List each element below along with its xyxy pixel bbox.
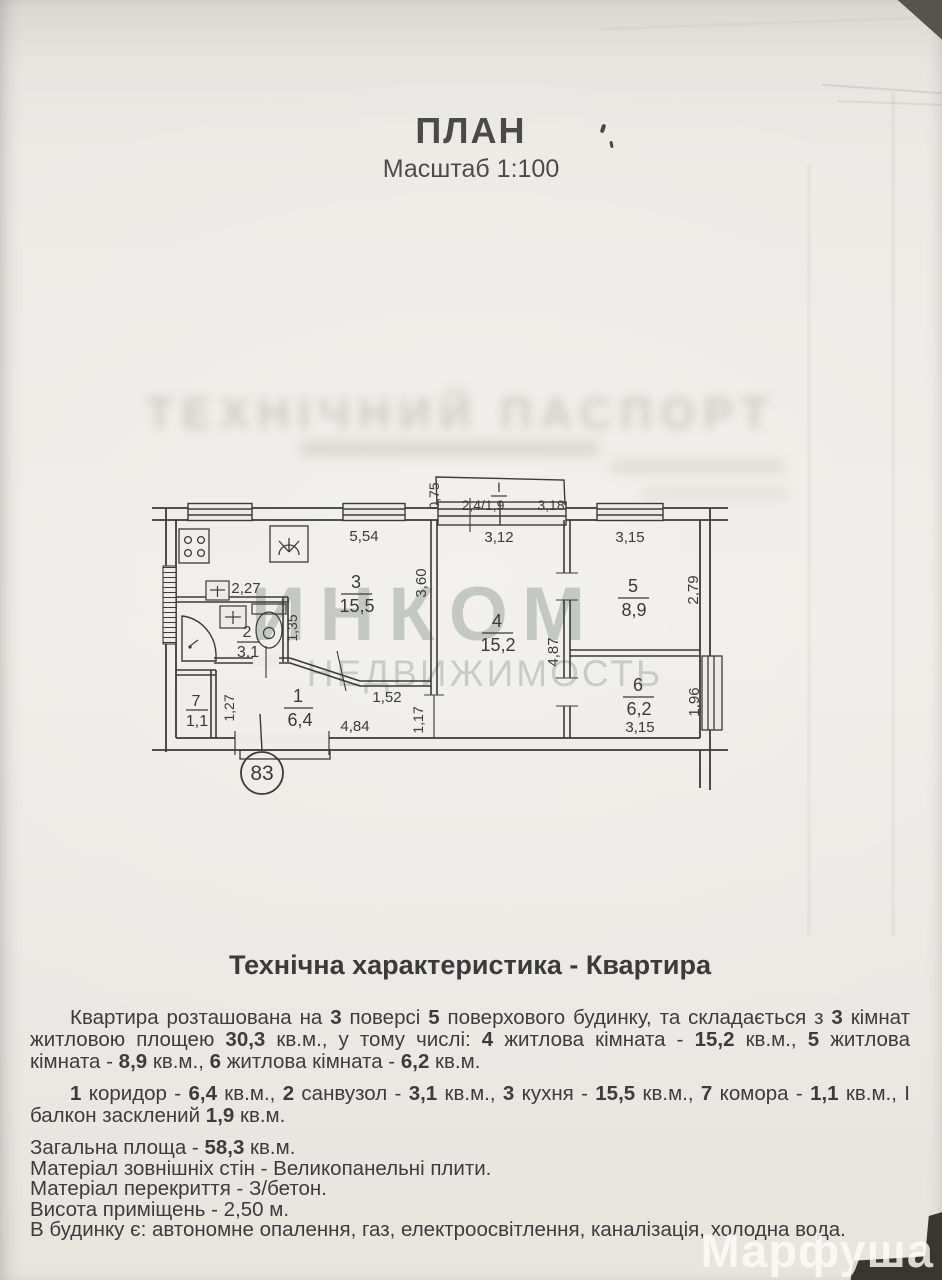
- svg-text:15,2: 15,2: [480, 635, 515, 655]
- dim-kitchen-top: 5,54: [349, 528, 378, 545]
- room-5-label: 5 8,9: [618, 576, 649, 620]
- description-paragraph-1: Квартира розташована на 3 поверсі 5 пове…: [30, 1007, 910, 1073]
- description-paragraph-2: 1 коридор - 6,4 кв.м., 2 санвузол - 3,1 …: [30, 1083, 910, 1127]
- walls-material-line: Матеріал зовнішніх стін - Великопанельні…: [30, 1159, 910, 1180]
- dim-room6-right: 1,96: [686, 687, 703, 716]
- svg-text:1,1: 1,1: [186, 713, 208, 730]
- radiator-icon: [163, 566, 176, 644]
- scanned-floor-plan-photo: { "header": { "title": "ПЛАН", "scale": …: [0, 0, 942, 1280]
- description-heading: Технічна характеристика - Квартира: [30, 950, 910, 981]
- room-4-label: 4 15,2: [480, 611, 515, 655]
- kitchen-stove-icon: [179, 529, 209, 563]
- dim-hall-diag: 1,52: [372, 689, 401, 706]
- room-1-label: 1 6,4: [284, 686, 313, 730]
- svg-text:8,9: 8,9: [621, 600, 646, 620]
- bathtub-icon: [182, 616, 216, 661]
- right-window-unit: [702, 656, 722, 730]
- dim-san-right: 1,35: [284, 614, 300, 641]
- svg-text:3,1: 3,1: [237, 644, 259, 661]
- dim-kitchen-right: 3,60: [413, 568, 430, 597]
- svg-text:4: 4: [492, 611, 502, 631]
- floors-material-line: Матеріал перекриття - З/бетон.: [30, 1179, 910, 1200]
- svg-text:6: 6: [633, 675, 643, 695]
- dim-room5-right: 2,79: [685, 575, 702, 604]
- dim-hall-right: 1,17: [410, 706, 426, 733]
- svg-text:7: 7: [192, 693, 201, 710]
- interior-walls: [176, 520, 700, 738]
- water-heater-icon: [270, 526, 308, 562]
- balcony-label: І: [497, 479, 501, 495]
- dim-room6-bottom: 3,15: [625, 719, 654, 736]
- photo-watermark: Марфуша: [700, 1223, 934, 1278]
- apartment-number-marker: 83: [241, 714, 283, 794]
- dim-pantry-right: 1,27: [221, 694, 237, 721]
- total-area-line: Загальна площа - 58,3 кв.м.: [30, 1138, 910, 1159]
- svg-text:5: 5: [628, 576, 638, 596]
- dim-room5-top: 3,15: [615, 529, 644, 546]
- svg-text:2: 2: [243, 624, 252, 641]
- room-3-label: 3 15,5: [339, 572, 374, 616]
- dim-balcony-window: 2,4/1,9: [462, 497, 505, 513]
- dim-balcony-right: 3,18: [537, 497, 564, 513]
- svg-text:3: 3: [351, 572, 361, 592]
- dim-room4-top: 3,12: [484, 529, 513, 546]
- room-6-label: 6 6,2: [623, 675, 654, 719]
- svg-text:6,4: 6,4: [287, 710, 312, 730]
- apartment-number: 83: [250, 762, 273, 785]
- dim-hall-bottom: 4,84: [340, 718, 369, 735]
- entrance-door: [235, 731, 330, 759]
- kitchen-sink-icon: [206, 581, 229, 600]
- svg-text:6,2: 6,2: [626, 699, 651, 719]
- svg-text:15,5: 15,5: [339, 596, 374, 616]
- dim-room4-right: 4,87: [545, 637, 562, 666]
- svg-text:1: 1: [293, 686, 303, 706]
- technical-description: Технічна характеристика - Квартира Кварт…: [30, 950, 910, 1241]
- ceiling-height-line: Висота приміщень - 2,50 м.: [30, 1200, 910, 1221]
- room-7-label: 7 1,1: [186, 693, 208, 730]
- dim-san-top: 2,27: [231, 580, 260, 597]
- dim-balcony-height: 0,75: [426, 482, 442, 509]
